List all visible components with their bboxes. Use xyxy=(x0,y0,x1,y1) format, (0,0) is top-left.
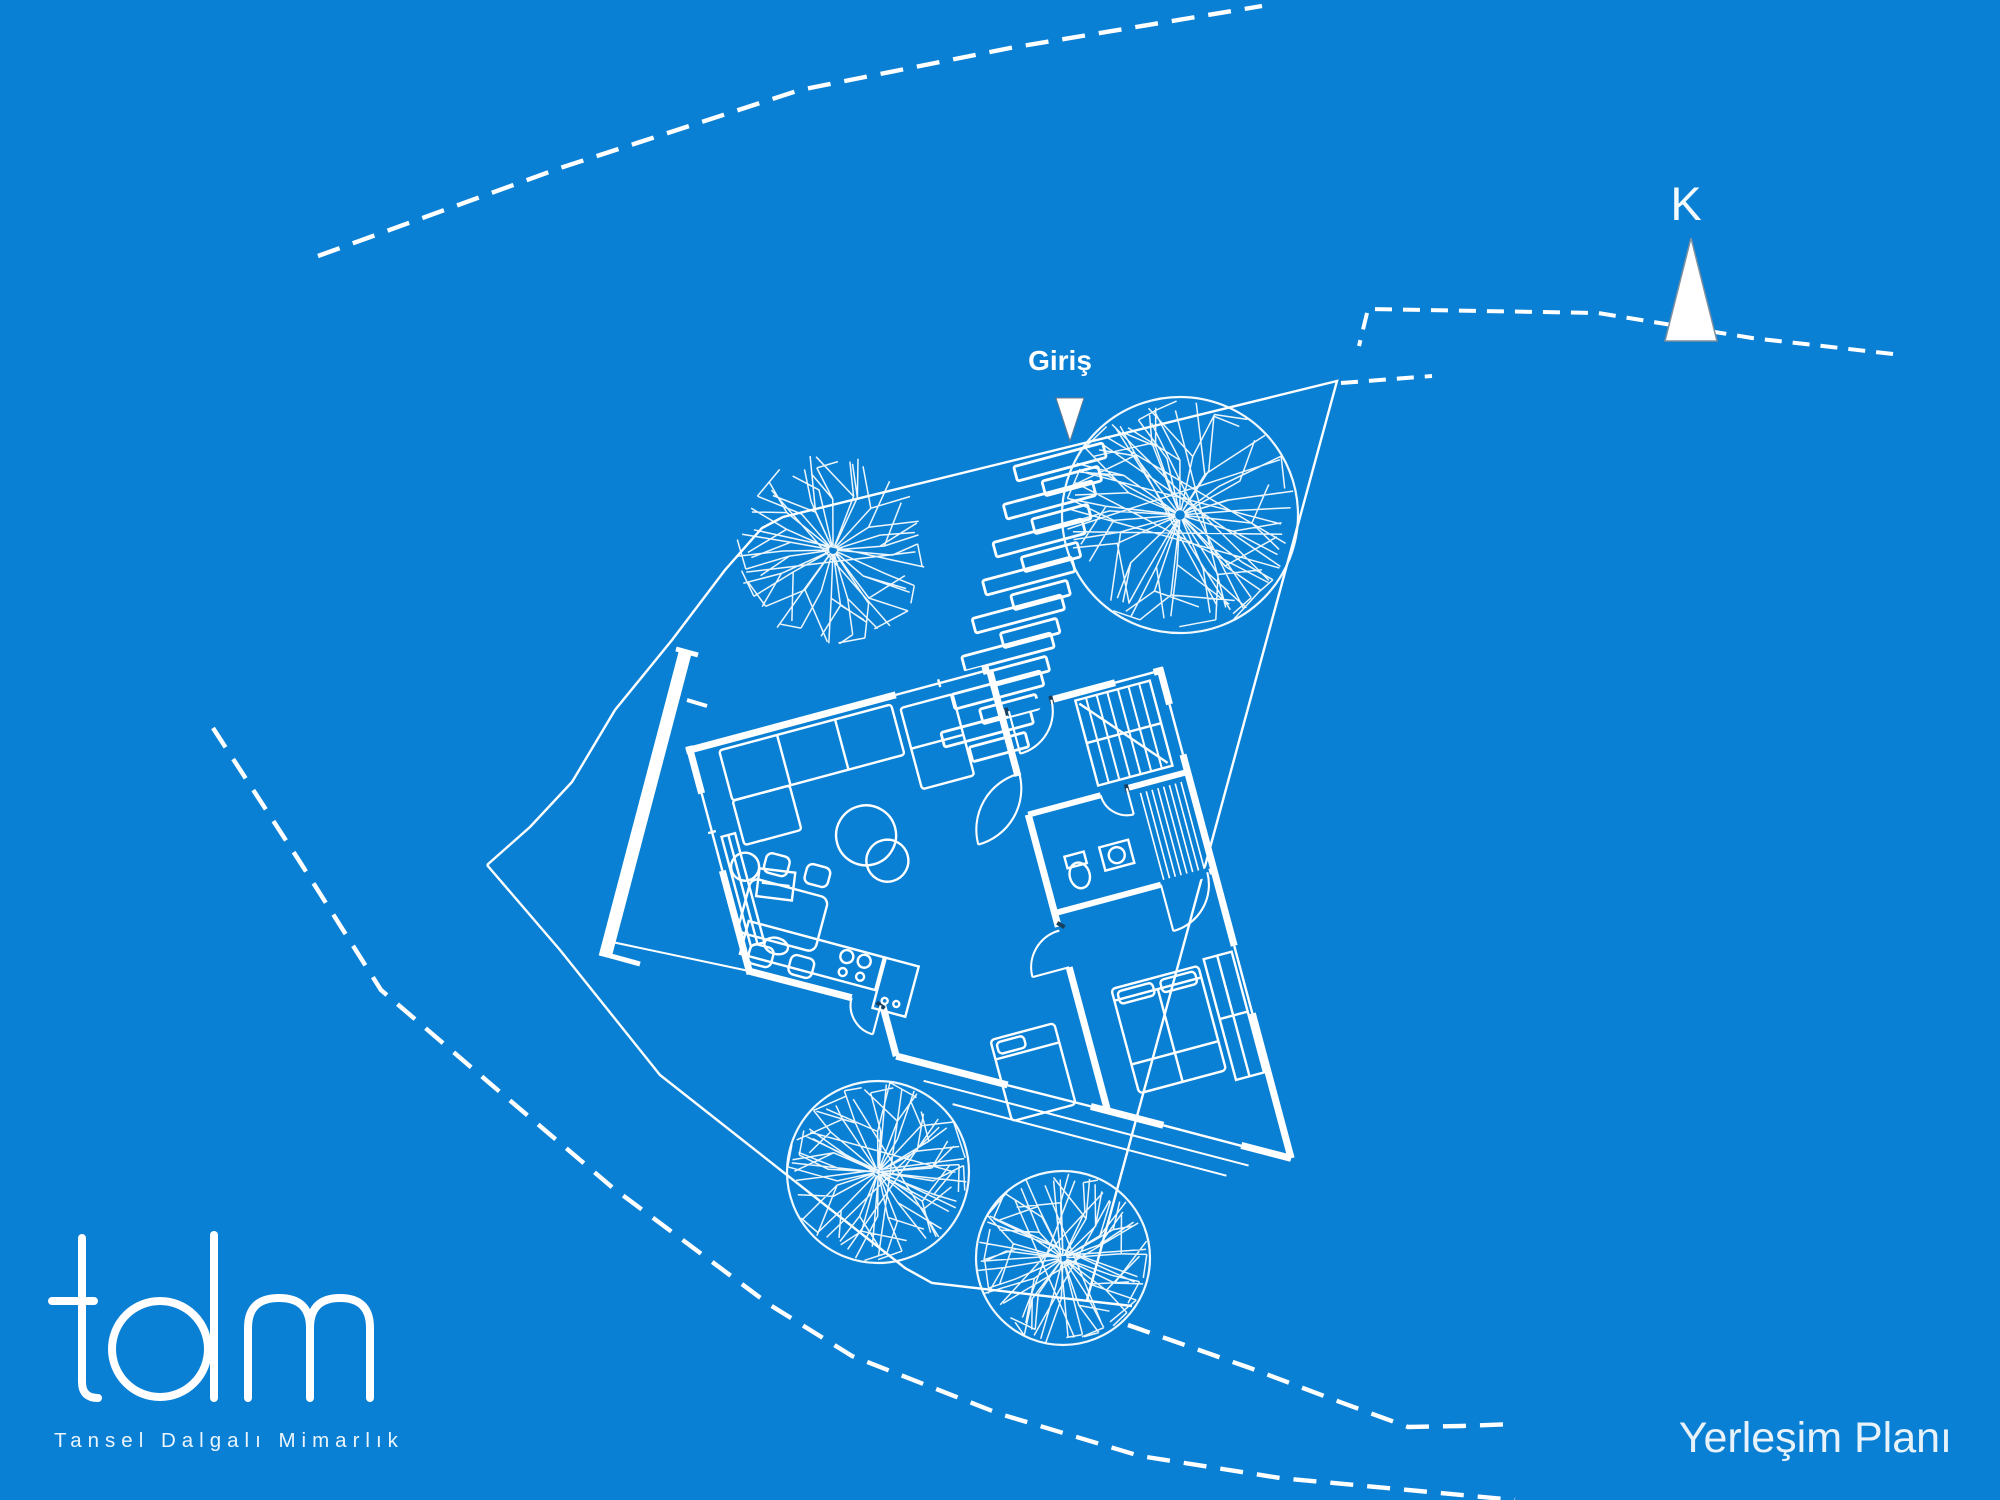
drawing-title: Yerleşim Planı xyxy=(1679,1414,1952,1462)
north-label: K xyxy=(1670,177,1701,230)
entrance-label: Giriş xyxy=(1028,345,1092,376)
logo-subtitle: Tansel Dalgalı Mimarlık xyxy=(54,1429,404,1452)
site-plan-canvas: Giriş K tdm Tansel Dalgalı Mimarlık Yerl… xyxy=(0,0,2000,1500)
